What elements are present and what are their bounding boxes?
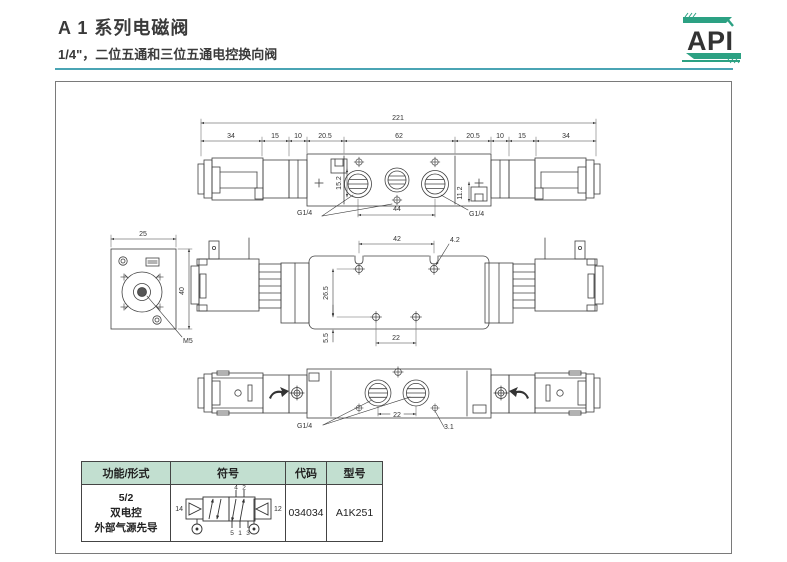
svg-text:20.5: 20.5 xyxy=(466,133,480,140)
bottom-port-right xyxy=(403,380,429,406)
dim-44: 44 xyxy=(393,206,401,213)
port-left xyxy=(345,171,372,198)
api-mini-logo xyxy=(146,258,159,266)
valve-symbol: 14 12 4 2 5 1 3 xyxy=(172,485,285,538)
dim-22-side: 22 xyxy=(392,335,400,342)
port-label-right: G1/4 xyxy=(469,211,484,218)
pilot-port-12: 12 xyxy=(274,506,282,513)
override-knob xyxy=(122,272,162,312)
brand-logo: API xyxy=(680,12,744,64)
col-symbol: 符号 xyxy=(171,462,286,485)
header-divider xyxy=(55,68,733,70)
code-cell: 034034 xyxy=(286,485,327,542)
col-function: 功能/形式 xyxy=(82,462,171,485)
port-center xyxy=(385,168,409,192)
logo-text: API xyxy=(687,26,734,56)
top-view: 221 34 15 10 20.5 62 20.5 10 15 34 xyxy=(198,115,600,218)
end-view: 25 40 M5 xyxy=(111,231,193,345)
svg-text:10: 10 xyxy=(496,133,504,140)
dim-42: 42 xyxy=(393,236,401,243)
dim-4-2: 4.2 xyxy=(450,237,460,244)
port-right xyxy=(422,171,449,198)
side-view: 42 4.2 26.5 5.5 22 xyxy=(191,236,603,346)
dim-25: 25 xyxy=(139,231,147,238)
svg-text:20.5: 20.5 xyxy=(318,133,332,140)
drawing-panel: 221 34 15 10 20.5 62 20.5 10 15 34 xyxy=(55,81,732,554)
svg-text:3: 3 xyxy=(246,530,250,537)
page-title: A 1 系列电磁阀 xyxy=(58,14,189,40)
svg-text:34: 34 xyxy=(227,133,235,140)
svg-text:15: 15 xyxy=(518,133,526,140)
pilot-port-14: 14 xyxy=(175,506,183,513)
catalog-page: A 1 系列电磁阀 1/4"，二位五通和三位五通电控换向阀 API xyxy=(0,0,787,562)
svg-text:1: 1 xyxy=(238,530,242,537)
spec-table: 功能/形式 符号 代码 型号 5/2 双电控 外部气源先导 xyxy=(81,461,383,542)
svg-text:62: 62 xyxy=(395,133,403,140)
dim-22-bottom: 22 xyxy=(393,412,401,419)
function-cell: 5/2 双电控 外部气源先导 xyxy=(82,485,171,542)
col-model: 型号 xyxy=(327,462,383,485)
col-code: 代码 xyxy=(286,462,327,485)
spec-data-row: 5/2 双电控 外部气源先导 xyxy=(82,485,383,542)
port-label-left: G1/4 xyxy=(297,210,312,217)
symbol-cell: 14 12 4 2 5 1 3 xyxy=(171,485,286,542)
page-subtitle: 1/4"，二位五通和三位五通电控换向阀 xyxy=(58,44,277,63)
dim-40: 40 xyxy=(179,287,186,295)
svg-text:10: 10 xyxy=(294,133,302,140)
dim-total: 221 xyxy=(392,115,404,122)
svg-text:5: 5 xyxy=(230,530,234,537)
model-cell: A1K251 xyxy=(327,485,383,542)
bottom-view: 22 G1/4 3.1 xyxy=(198,367,600,431)
svg-text:15: 15 xyxy=(271,133,279,140)
valve-drawings: 221 34 15 10 20.5 62 20.5 10 15 34 xyxy=(56,82,731,461)
dim-26-5: 26.5 xyxy=(323,286,330,300)
dim-11-2: 11.2 xyxy=(457,186,464,199)
svg-text:2: 2 xyxy=(242,485,246,492)
bottom-port-label: G1/4 xyxy=(297,423,312,430)
dim-5-5: 5.5 xyxy=(323,333,330,343)
svg-text:4: 4 xyxy=(234,485,238,492)
thread-m5: M5 xyxy=(183,338,193,345)
bottom-port-left xyxy=(365,380,391,406)
dim-15-2: 15.2 xyxy=(336,176,343,190)
svg-text:34: 34 xyxy=(562,133,570,140)
spec-header-row: 功能/形式 符号 代码 型号 xyxy=(82,462,383,485)
dim-3-1: 3.1 xyxy=(444,424,454,431)
